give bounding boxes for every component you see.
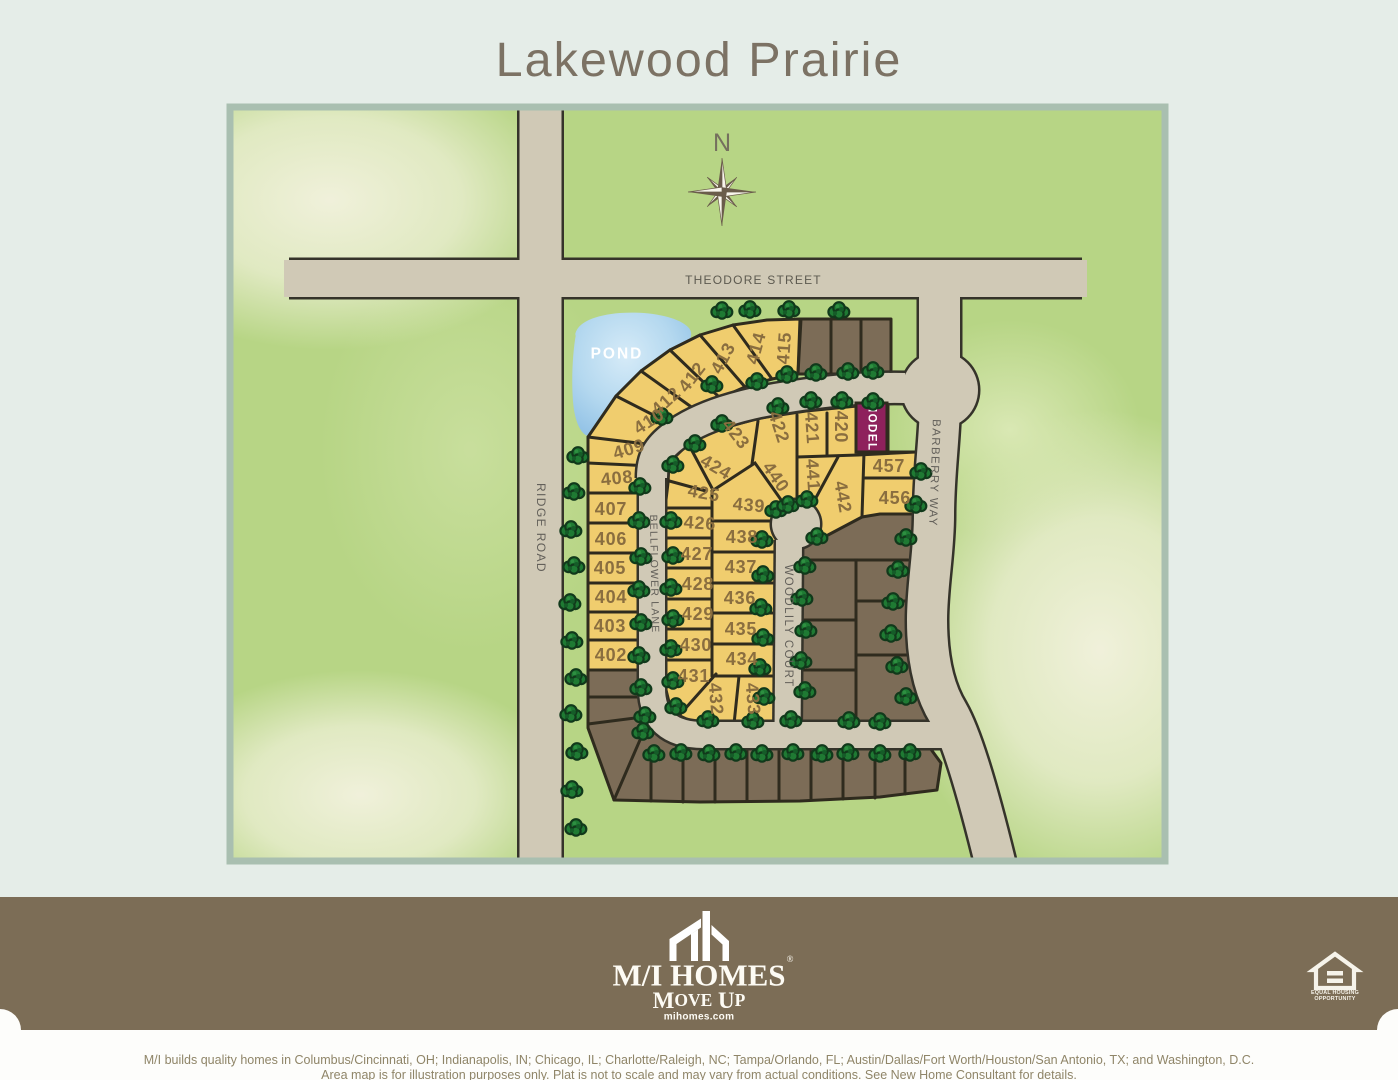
svg-text:M/I HOMES: M/I HOMES (612, 958, 785, 993)
svg-text:434: 434 (726, 649, 758, 669)
svg-text:405: 405 (594, 558, 626, 578)
svg-text:415: 415 (773, 331, 795, 365)
svg-text:435: 435 (725, 619, 757, 639)
svg-text:441: 441 (802, 458, 824, 492)
svg-text:407: 407 (595, 499, 627, 519)
svg-text:MOVE UP: MOVE UP (653, 988, 746, 1013)
svg-text:428: 428 (682, 574, 714, 594)
svg-text:408: 408 (600, 466, 634, 489)
svg-text:433: 433 (742, 682, 765, 716)
svg-text:Lakewood Prairie: Lakewood Prairie (496, 33, 903, 87)
svg-text:402: 402 (595, 645, 627, 665)
svg-text:406: 406 (595, 529, 627, 549)
svg-text:POND: POND (591, 346, 644, 363)
svg-text:429: 429 (682, 604, 714, 624)
svg-text:®: ® (787, 954, 794, 964)
svg-text:432: 432 (705, 682, 728, 716)
svg-text:WOODLILY COURT: WOODLILY COURT (782, 564, 794, 687)
svg-text:THEODORE STREET: THEODORE STREET (685, 273, 822, 287)
svg-text:mihomes.com: mihomes.com (664, 1012, 735, 1023)
svg-text:457: 457 (873, 456, 905, 476)
svg-text:438: 438 (726, 527, 758, 547)
svg-text:403: 403 (594, 616, 626, 636)
svg-text:M/I builds quality homes in Co: M/I builds quality homes in Columbus/Cin… (144, 1053, 1255, 1067)
svg-text:437: 437 (725, 557, 757, 577)
svg-text:BELLFLOWER LANE: BELLFLOWER LANE (647, 514, 661, 633)
svg-text:RIDGE ROAD: RIDGE ROAD (534, 483, 548, 573)
svg-text:421: 421 (801, 411, 823, 445)
svg-text:439: 439 (732, 494, 766, 517)
svg-text:OPPORTUNITY: OPPORTUNITY (1314, 996, 1355, 1002)
svg-text:456: 456 (879, 488, 911, 508)
svg-text:420: 420 (831, 411, 851, 443)
svg-text:Area map is for illustration p: Area map is for illustration purposes on… (321, 1068, 1077, 1080)
svg-text:427: 427 (681, 544, 713, 564)
svg-text:N: N (713, 129, 731, 157)
svg-text:436: 436 (724, 588, 756, 608)
svg-text:404: 404 (595, 587, 627, 607)
svg-text:430: 430 (680, 635, 712, 655)
svg-text:426: 426 (683, 512, 717, 534)
